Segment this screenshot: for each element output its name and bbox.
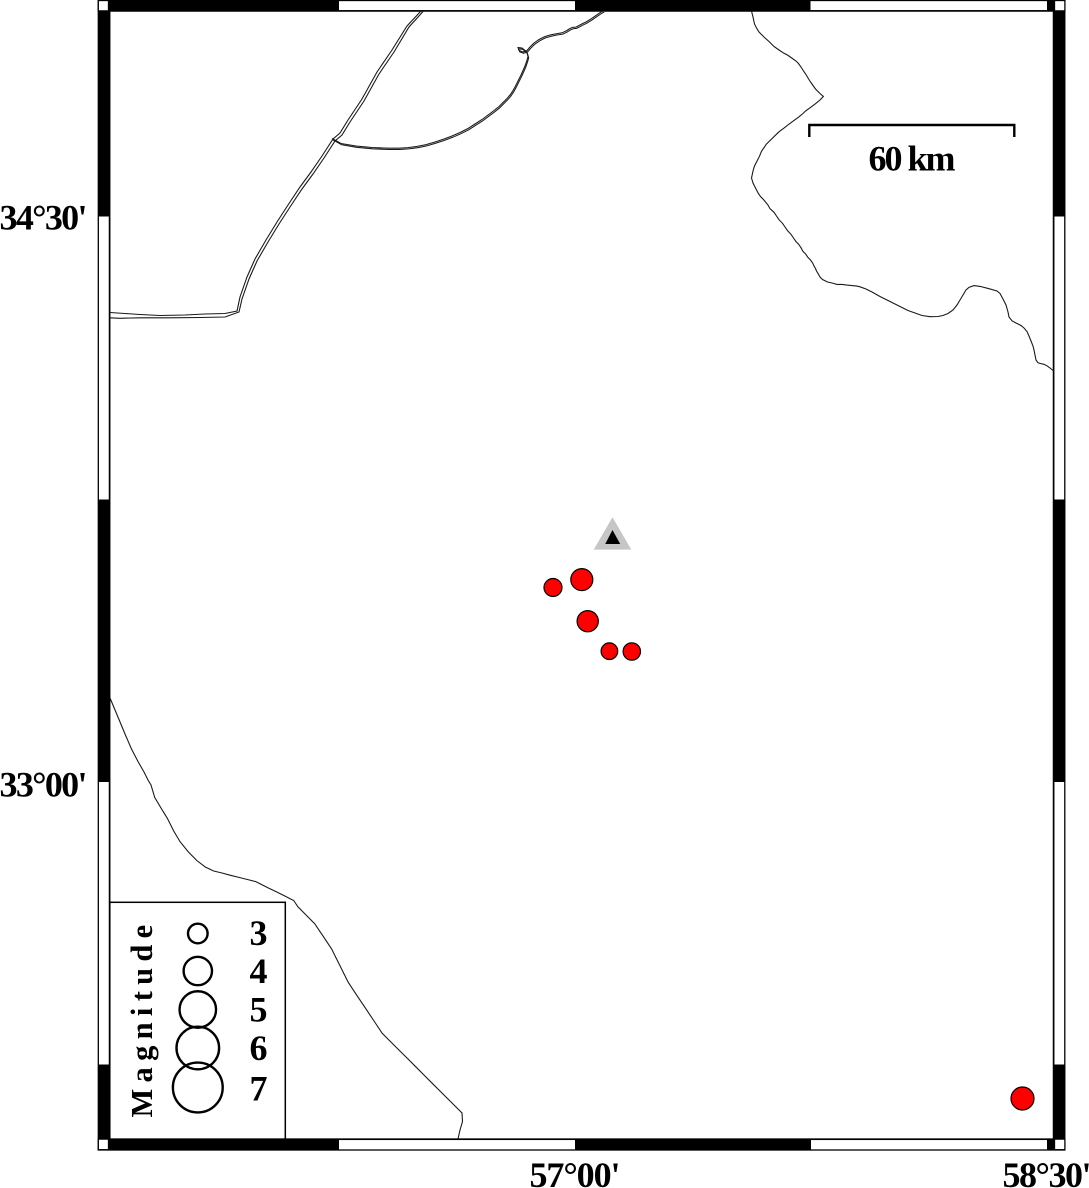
svg-text:34°30': 34°30' <box>0 198 88 238</box>
svg-text:Magnitude: Magnitude <box>125 918 159 1117</box>
svg-text:5: 5 <box>250 990 268 1030</box>
svg-text:3: 3 <box>250 913 268 953</box>
svg-text:4: 4 <box>250 951 268 991</box>
svg-text:57°00': 57°00' <box>530 1155 621 1188</box>
svg-text:6: 6 <box>250 1028 268 1068</box>
svg-text:33°00': 33°00' <box>0 765 88 805</box>
svg-text:7: 7 <box>250 1069 268 1109</box>
svg-text:60 km: 60 km <box>869 139 956 179</box>
svg-text:58°30': 58°30' <box>1003 1155 1089 1188</box>
